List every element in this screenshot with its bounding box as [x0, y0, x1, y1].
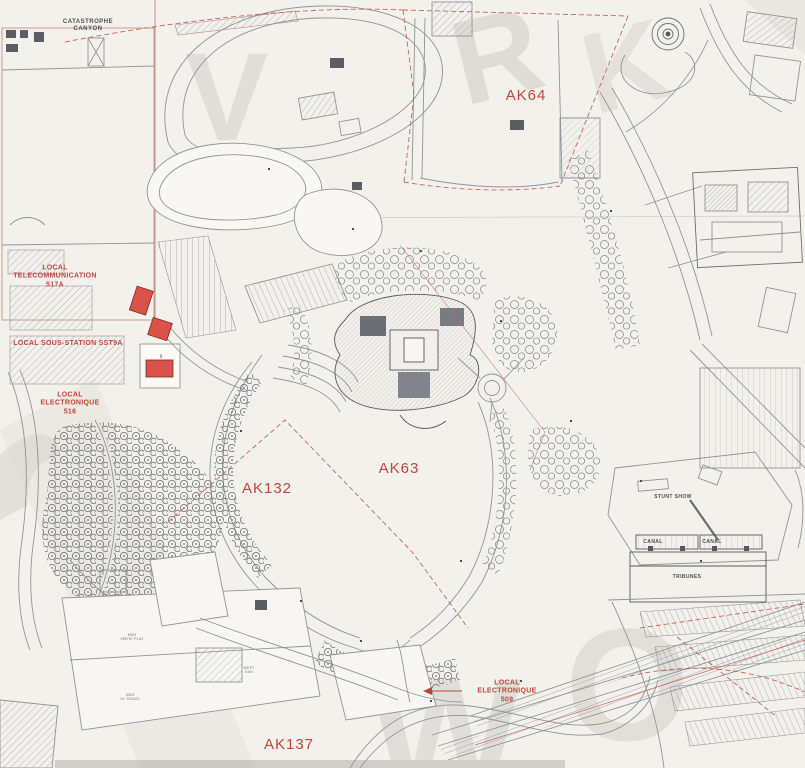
site-plan-scan: V R K O W [0, 0, 805, 768]
site-plan-linework: V R K O W [0, 0, 805, 768]
